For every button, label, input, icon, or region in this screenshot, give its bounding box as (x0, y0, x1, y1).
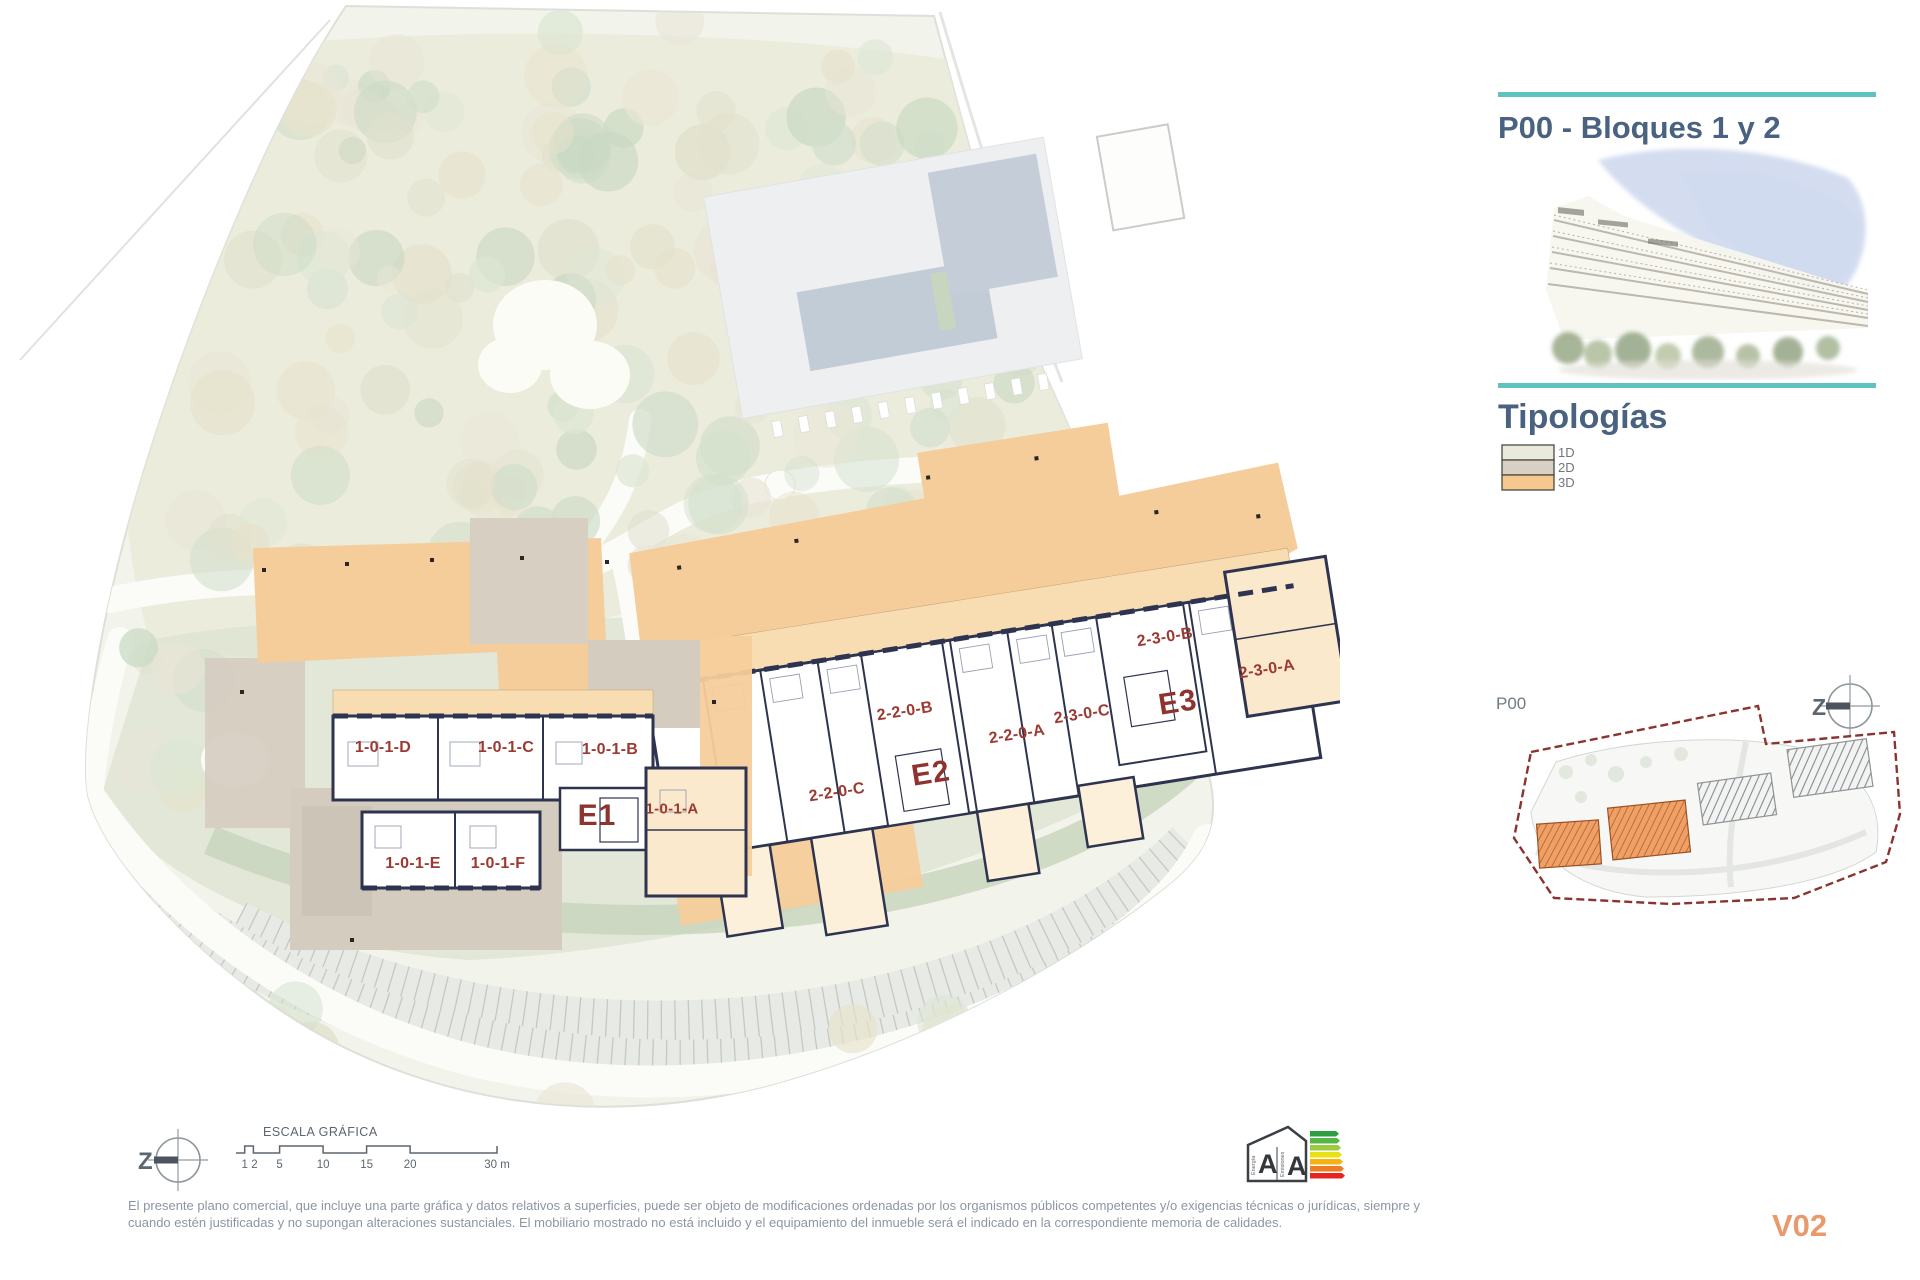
scale-tick: 1 (241, 1159, 247, 1171)
scale-bar (236, 1146, 497, 1153)
block-label-e2: E2 (909, 754, 953, 794)
unit-label: 1-0-1-E (385, 855, 440, 873)
unit-label: 1-0-1-D (355, 739, 411, 757)
energy-rating-badge: Energía Emisiones A A (1244, 1124, 1348, 1190)
site-plan-document: 1-0-1-D 1-0-1-C 1-0-1-B 1-0-1-A E1 1-0-1… (0, 0, 1920, 1280)
energy-letter: A (1258, 1149, 1278, 1179)
legend-swatch-2d (1502, 460, 1554, 475)
legend-label-2d: 2D (1558, 460, 1575, 475)
compass-letter: Z (138, 1148, 153, 1175)
legend-label-3d: 3D (1558, 475, 1575, 490)
typology-legend: 1D 2D 3D (1500, 444, 1740, 494)
page-title: P00 - Bloques 1 y 2 (1498, 110, 1781, 146)
keymap-highlighted-block-2 (1607, 800, 1690, 860)
scale-tick: 30 m (484, 1159, 510, 1171)
legend-swatch-3d (1502, 475, 1554, 490)
disclaimer-line-1: El presente plano comercial, que incluye… (128, 1197, 1420, 1214)
disclaimer-line-2: cuando estén justificadas y no supongan … (128, 1214, 1282, 1231)
north-compass-plan: Z (106, 1124, 236, 1196)
graphic-scale: ESCALA GRÁFICA 1 2 5 10 15 20 30 m (225, 1108, 525, 1188)
legend-swatch-1d (1502, 445, 1554, 460)
teal-divider-top (1498, 92, 1876, 97)
teal-divider-middle (1498, 383, 1876, 388)
energy-letter: A (1287, 1151, 1307, 1181)
unit-label: 1-0-1-F (471, 855, 526, 873)
sports-court (1097, 124, 1184, 230)
scale-tick: 2 (251, 1159, 257, 1171)
scale-tick: 20 (404, 1159, 417, 1171)
legend-label-1d: 1D (1558, 445, 1575, 460)
scale-title: ESCALA GRÁFICA (263, 1124, 378, 1139)
version-badge: V02 (1772, 1208, 1827, 1244)
unit-label: 1-0-1-A (646, 801, 699, 818)
energy-axis-label: Emisiones (1280, 1151, 1286, 1177)
energy-axis-label: Energía (1251, 1155, 1257, 1175)
unit-label: 1-0-1-B (582, 741, 638, 759)
scale-tick: 5 (276, 1159, 282, 1171)
keymap-highlighted-block-1 (1537, 820, 1602, 868)
energy-scale-bars (1310, 1131, 1345, 1179)
unit-label: 1-0-1-C (478, 739, 534, 757)
building-rendering-illustration (1528, 142, 1893, 380)
block-label-e1: E1 (578, 799, 617, 833)
scale-tick: 15 (360, 1159, 373, 1171)
scale-tick: 10 (317, 1159, 330, 1171)
block-label-e3: E3 (1156, 683, 1200, 723)
typologies-title: Tipologías (1498, 398, 1667, 437)
key-map-overview (1496, 702, 1910, 942)
